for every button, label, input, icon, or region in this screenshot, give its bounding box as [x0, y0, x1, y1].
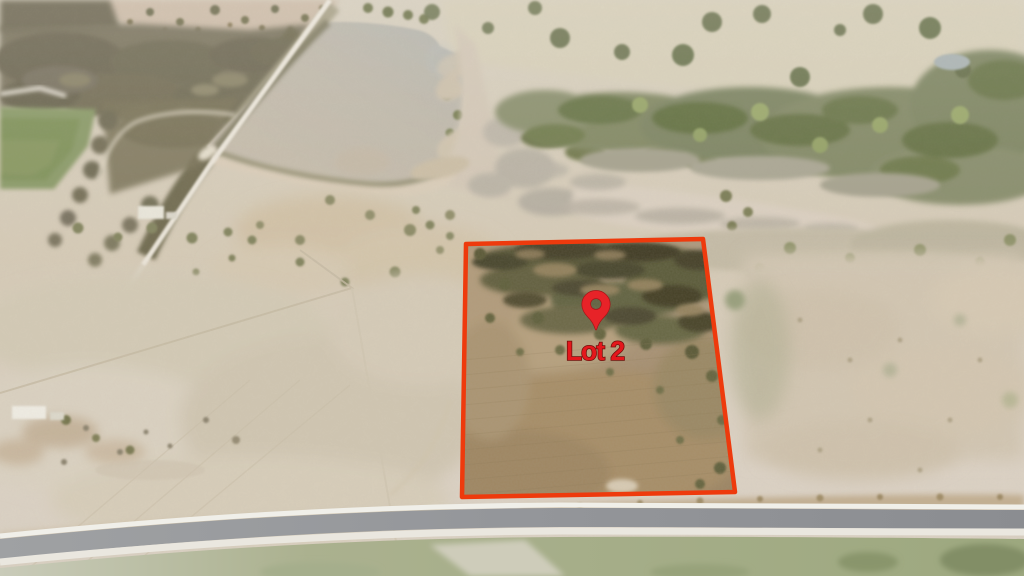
svg-text:Lot 2: Lot 2: [566, 336, 625, 366]
